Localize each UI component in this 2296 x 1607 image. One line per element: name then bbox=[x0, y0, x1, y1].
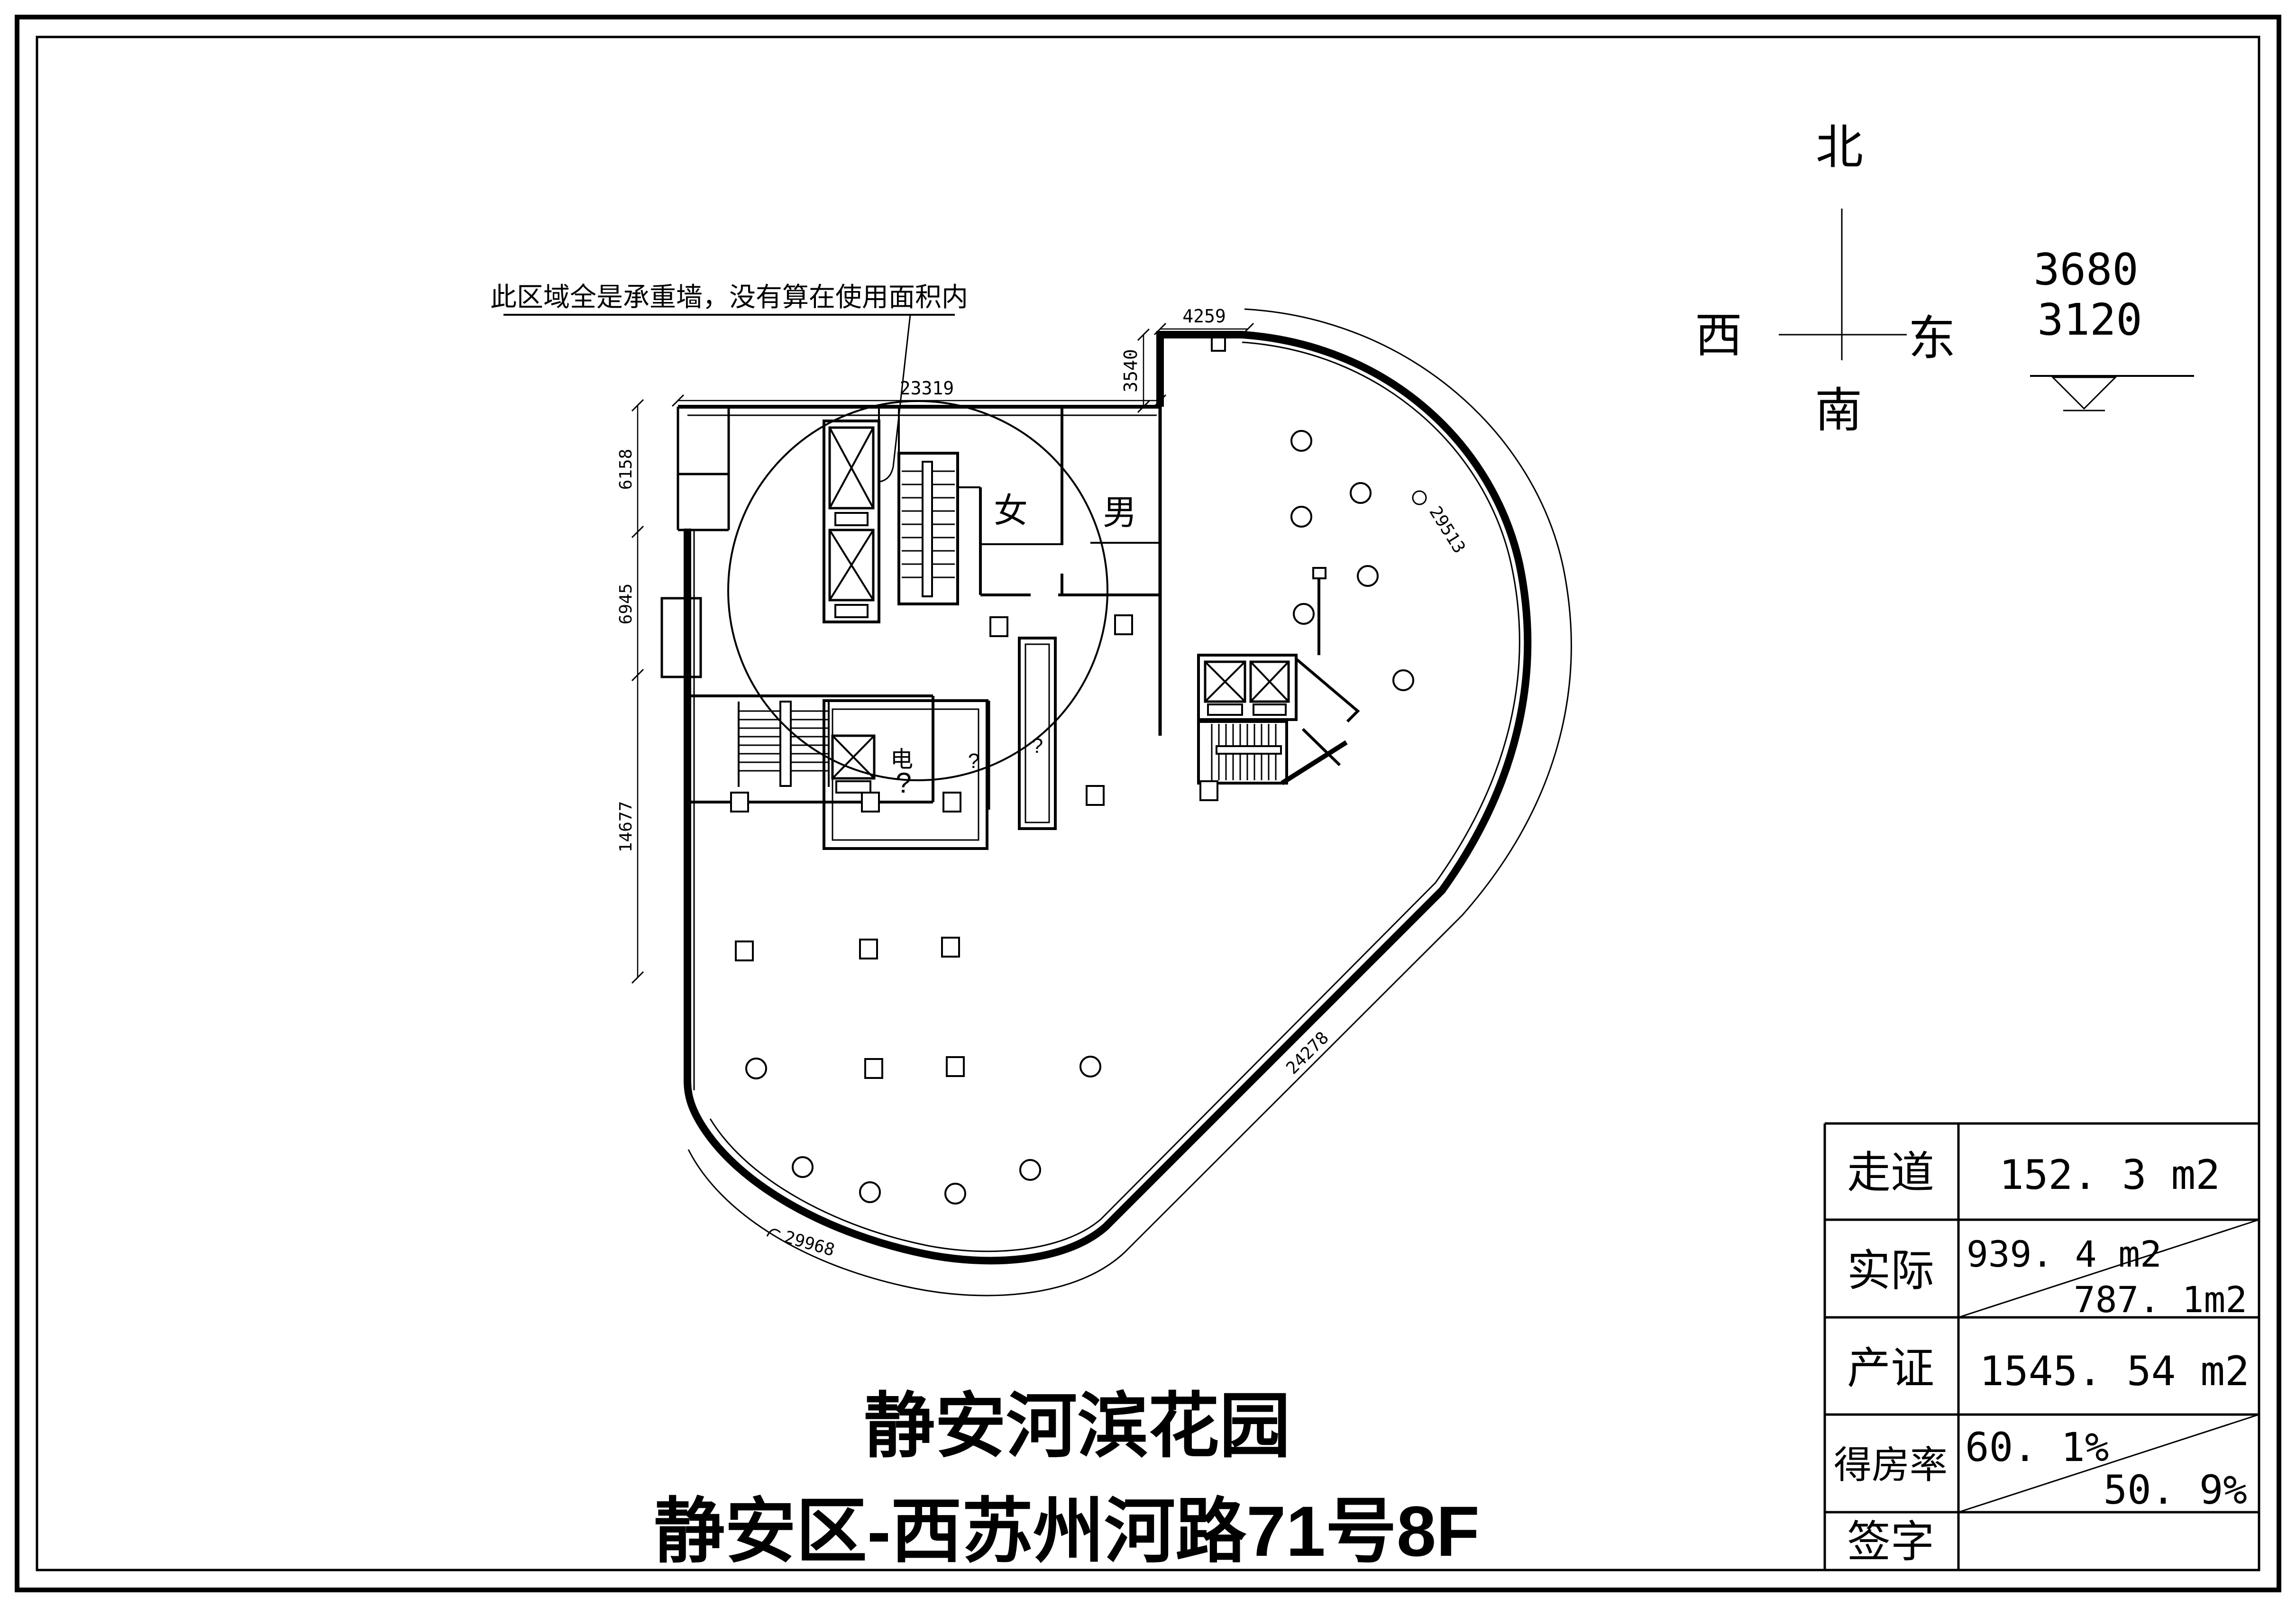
core-interior: 女 男 ? ? ? 电 bbox=[662, 407, 1358, 849]
round-columns bbox=[746, 431, 1413, 1204]
angled-wall-1 bbox=[1296, 659, 1358, 721]
compass-south-label: 南 bbox=[1815, 384, 1862, 437]
inner-border bbox=[37, 37, 2259, 1570]
load-bearing-annotation: 此区域全是承重墙，没有算在使用面积内 bbox=[490, 282, 1107, 780]
elevation-bottom-value: 3120 bbox=[2037, 294, 2142, 345]
elevation-triangle-icon bbox=[2053, 377, 2115, 409]
corridor-q-inner bbox=[1025, 644, 1049, 822]
elevator-2-door bbox=[835, 605, 868, 617]
dim-arc-bottom-text: 29968 bbox=[782, 1227, 837, 1260]
dim-6158-text: 6158 bbox=[616, 449, 636, 490]
elevator-4-x-icon bbox=[1205, 662, 1245, 702]
compass-north-label: 北 bbox=[1816, 121, 1863, 174]
column-grid bbox=[731, 431, 1413, 1204]
elevator-4-door bbox=[1208, 704, 1242, 715]
table-label-ratio: 得房率 bbox=[1834, 1444, 1948, 1486]
dim-6945-text: 6945 bbox=[616, 584, 636, 625]
elevator-5-x-icon bbox=[1251, 662, 1289, 702]
left-shaft-bump bbox=[662, 598, 701, 677]
title-block: 静安河滨花园 静安区-西苏州河路71号8F bbox=[654, 1386, 1480, 1571]
table-value-actual-top: 939. 4 m2 bbox=[1967, 1233, 2162, 1275]
stair-3-rail bbox=[1217, 746, 1281, 754]
outer-border bbox=[17, 17, 2279, 1590]
stair-1-rail bbox=[923, 462, 932, 596]
female-toilet-label: 女 bbox=[994, 492, 1028, 530]
table-label-certificate: 产证 bbox=[1847, 1344, 1934, 1393]
annotation-text: 此区域全是承重墙，没有算在使用面积内 bbox=[490, 282, 968, 312]
wall-inner-face bbox=[710, 342, 1519, 1251]
table-label-actual: 实际 bbox=[1847, 1247, 1934, 1295]
floorplan-sheet: 女 男 ? ? ? 电 bbox=[0, 0, 2296, 1607]
elevator-shaft-1 bbox=[824, 421, 879, 622]
elevator-1-door bbox=[835, 513, 868, 525]
stair-2-rail bbox=[780, 702, 791, 786]
elevator-3-x-icon bbox=[832, 736, 874, 778]
sheet-border bbox=[17, 17, 2279, 1590]
male-toilet-label: 男 bbox=[1103, 494, 1137, 532]
dim-14677-text: 14677 bbox=[616, 801, 636, 852]
right-core-notch bbox=[1313, 568, 1326, 578]
dim-arc-right-text: 29513 bbox=[1425, 503, 1469, 557]
window-mark bbox=[1212, 338, 1225, 351]
exterior-wall bbox=[687, 335, 1528, 1260]
room-q-small-label: ? bbox=[968, 749, 979, 773]
compass: 北 南 西 东 bbox=[1695, 121, 1956, 437]
electric-room-label: 电 bbox=[890, 747, 913, 772]
corridor-q bbox=[1019, 638, 1055, 829]
dim-4259-text: 4259 bbox=[1182, 306, 1226, 327]
table-value-certificate: 1545. 54 m2 bbox=[1979, 1348, 2250, 1395]
table-label-corridor: 走道 bbox=[1847, 1149, 1934, 1197]
title-line-2: 静安区-西苏州河路71号8F bbox=[654, 1491, 1480, 1571]
table-value-corridor: 152. 3 m2 bbox=[1999, 1151, 2220, 1199]
elevator-3-door bbox=[836, 781, 870, 793]
square-columns bbox=[731, 615, 1217, 1078]
table-value-ratio-bottom: 50. 9% bbox=[2104, 1467, 2247, 1513]
elevation-marker: 3680 3120 bbox=[2030, 244, 2194, 411]
elevator-5-door bbox=[1253, 704, 1286, 715]
right-core-shaft bbox=[1198, 655, 1296, 720]
area-table: 走道 152. 3 m2 实际 939. 4 m2 787. 1m2 产证 15… bbox=[1825, 1123, 2259, 1570]
elevation-top-value: 3680 bbox=[2033, 244, 2139, 295]
title-line-1: 静安河滨花园 bbox=[864, 1386, 1290, 1466]
table-value-actual-bottom: 787. 1m2 bbox=[2074, 1278, 2247, 1321]
elevator-2-x-icon bbox=[830, 530, 873, 600]
dim-3540-text: 3540 bbox=[1120, 349, 1141, 393]
compass-east-label: 东 bbox=[1908, 312, 1956, 365]
dim-top-text: 23319 bbox=[900, 378, 954, 399]
compass-west-label: 西 bbox=[1695, 309, 1742, 362]
table-value-ratio-top: 60. 1% bbox=[1965, 1424, 2109, 1470]
table-label-signature: 签字 bbox=[1847, 1518, 1934, 1566]
elevator-1-x-icon bbox=[830, 428, 873, 508]
dim-arc-right-symbol bbox=[1413, 491, 1426, 504]
